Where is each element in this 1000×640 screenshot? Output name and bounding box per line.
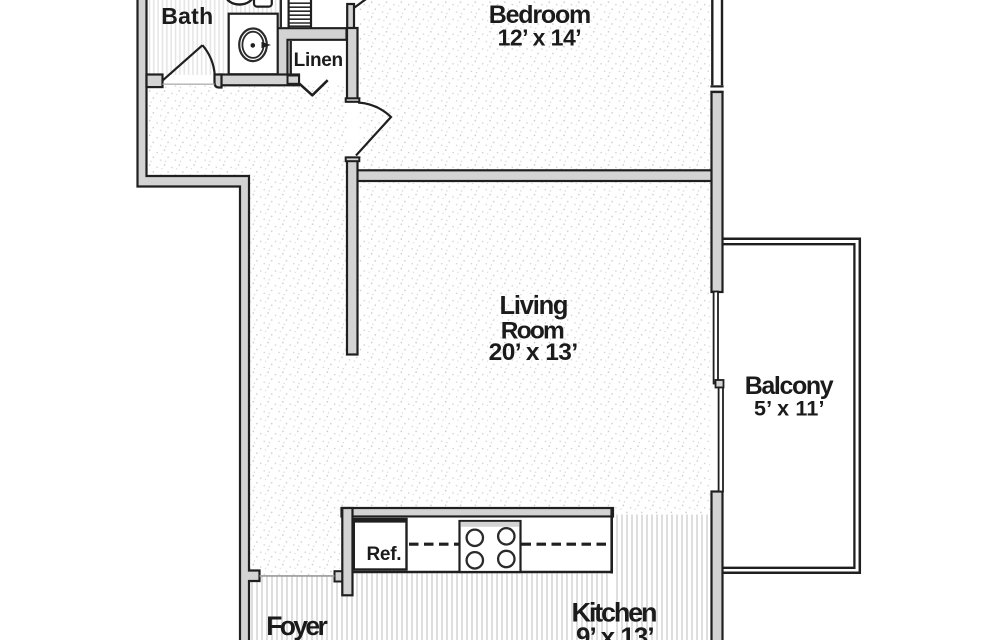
svg-text:Living: Living: [500, 292, 569, 320]
svg-text:20’ x 13’: 20’ x 13’: [489, 339, 579, 366]
svg-text:12’ x 14’: 12’ x 14’: [498, 24, 582, 50]
svg-text:Bath: Bath: [161, 3, 213, 29]
svg-text:Linen: Linen: [294, 50, 344, 71]
svg-text:Ref.: Ref.: [367, 544, 402, 565]
svg-text:5’ x 11’: 5’ x 11’: [754, 396, 825, 420]
svg-text:9’ x 13’: 9’ x 13’: [576, 622, 655, 640]
svg-text:Foyer: Foyer: [266, 611, 328, 640]
